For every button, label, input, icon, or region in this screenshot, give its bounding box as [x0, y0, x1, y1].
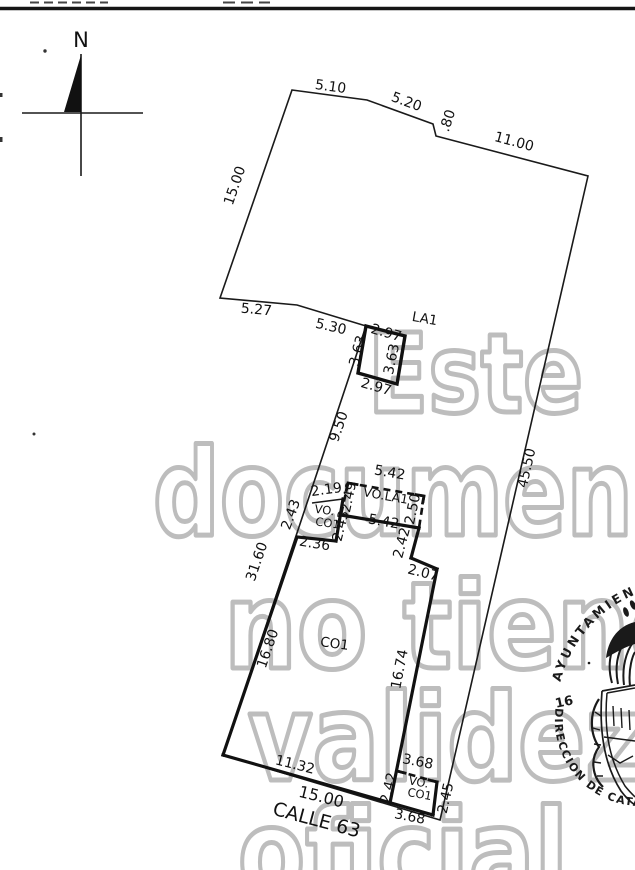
- sheet-top-border: [0, 3, 635, 9]
- dim-top-step: .80: [437, 108, 459, 134]
- speck-edge-1: [0, 93, 3, 97]
- north-arrow: N: [22, 28, 143, 176]
- speck-left-margin: [33, 433, 36, 436]
- dim-top-edge-3: 11.00: [493, 129, 536, 155]
- plan-canvas: Este documen no tiene validez oficial N: [0, 0, 635, 870]
- dim-top-edge-2: 5.20: [389, 89, 424, 115]
- vo-co1-lower-corner-bracket-right: [429, 780, 437, 782]
- scanned-cadastral-plan: Este documen no tiene validez oficial N: [0, 0, 635, 870]
- speck-edge-2: [0, 137, 3, 142]
- vo-co1-lower-corner-bracket-left: [397, 771, 405, 773]
- north-label: N: [73, 28, 89, 52]
- scan-specks: [0, 49, 47, 435]
- dim-left-upper: 15.00: [221, 164, 249, 207]
- dim-la1-left: 3.63: [346, 334, 370, 368]
- seal-speck: [588, 662, 591, 665]
- watermark-line-5: oficial: [238, 785, 568, 870]
- north-arrow-pointer: [64, 55, 81, 112]
- dim-notch-1: 5.27: [240, 301, 272, 320]
- speck-near-north: [43, 49, 46, 52]
